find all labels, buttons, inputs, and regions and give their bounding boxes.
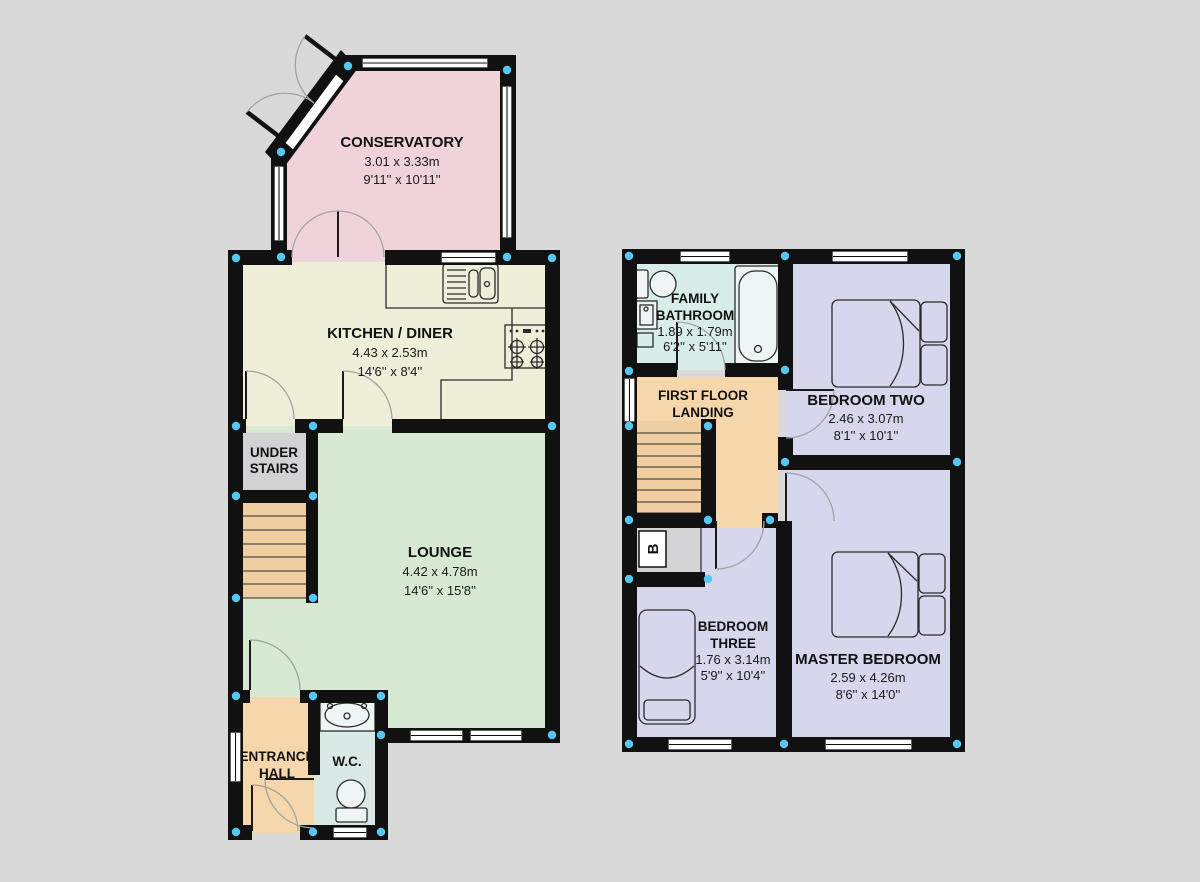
bed-single-icon xyxy=(639,610,695,724)
label-bedroom-two-metric: 2.46 x 3.07m xyxy=(828,411,903,426)
window-bathroom-top xyxy=(680,251,730,262)
label-conservatory-metric: 3.01 x 3.33m xyxy=(364,154,439,169)
label-bedroom-three-2: THREE xyxy=(710,636,756,651)
label-under-stairs-2: STAIRS xyxy=(250,461,299,476)
wc-toilet-icon xyxy=(336,780,367,822)
label-landing-2: LANDING xyxy=(672,405,734,420)
label-kitchen-imperial: 14'6'' x 8'4'' xyxy=(358,364,423,379)
window-lounge-1 xyxy=(410,730,463,741)
window-conservatory-top xyxy=(362,58,488,68)
label-bathroom-metric: 1.89 x 1.79m xyxy=(657,324,732,339)
window-bedroom-three-bottom xyxy=(668,739,732,750)
label-bathroom-2: BATHROOM xyxy=(656,308,735,323)
room-landing-strip xyxy=(716,508,762,528)
label-wc: W.C. xyxy=(332,754,361,769)
label-kitchen-metric: 4.43 x 2.53m xyxy=(352,345,427,360)
room-entrance-hall xyxy=(236,697,314,833)
window-conservatory-left xyxy=(274,166,284,241)
label-conservatory: CONSERVATORY xyxy=(340,134,463,151)
window-conservatory-right xyxy=(502,86,512,238)
label-lounge-metric: 4.42 x 4.78m xyxy=(402,564,477,579)
label-under-stairs-1: UNDER xyxy=(250,445,298,460)
window-landing-left xyxy=(624,378,635,422)
window-master-bottom xyxy=(825,739,912,750)
label-bedroom-three-imperial: 5'9'' x 10'4'' xyxy=(701,668,766,683)
label-bedroom-two-imperial: 8'1'' x 10'1'' xyxy=(834,428,899,443)
label-master-bedroom-imperial: 8'6'' x 14'0'' xyxy=(836,687,901,702)
wc-basin-icon xyxy=(320,699,375,731)
bath-icon xyxy=(735,266,781,365)
first-floor-plan: B xyxy=(622,249,965,752)
label-conservatory-imperial: 9'11'' x 10'11'' xyxy=(363,172,440,187)
label-bedroom-two: BEDROOM TWO xyxy=(807,392,925,409)
label-bedroom-three-metric: 1.76 x 3.14m xyxy=(695,652,770,667)
window-kitchen xyxy=(441,252,496,263)
window-wc xyxy=(333,827,367,838)
label-master-bedroom: MASTER BEDROOM xyxy=(795,651,941,668)
label-entrance-hall-1: ENTRANCE xyxy=(239,749,314,764)
label-lounge-imperial: 14'6'' x 15'8'' xyxy=(404,583,476,598)
label-master-bedroom-metric: 2.59 x 4.26m xyxy=(830,670,905,685)
window-bedroom-two-top xyxy=(832,251,908,262)
label-landing-1: FIRST FLOOR xyxy=(658,388,748,403)
window-lounge-2 xyxy=(470,730,522,741)
label-lounge: LOUNGE xyxy=(408,544,472,561)
floorplan-svg: CONSERVATORY 3.01 x 3.33m 9'11'' x 10'11… xyxy=(0,0,1200,882)
ground-floor-plan: CONSERVATORY 3.01 x 3.33m 9'11'' x 10'11… xyxy=(228,36,560,840)
label-kitchen: KITCHEN / DINER xyxy=(327,325,453,342)
label-boiler: B xyxy=(645,543,662,554)
label-bathroom-1: FAMILY xyxy=(671,291,719,306)
boiler-icon: B xyxy=(639,531,666,567)
label-bathroom-imperial: 6'2'' x 5'11'' xyxy=(663,339,727,354)
label-entrance-hall-2: HALL xyxy=(259,766,295,781)
floorplan-page: CONSERVATORY 3.01 x 3.33m 9'11'' x 10'11… xyxy=(0,0,1200,882)
label-bedroom-three-1: BEDROOM xyxy=(698,619,769,634)
